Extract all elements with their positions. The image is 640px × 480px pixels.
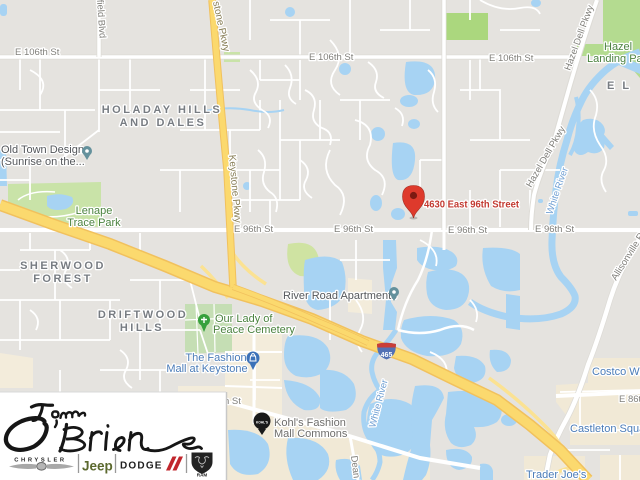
- svg-text:(Sunrise on the...: (Sunrise on the...: [1, 156, 85, 168]
- svg-text:E 86t: E 86t: [619, 394, 640, 405]
- svg-text:Peace Cemetery: Peace Cemetery: [213, 324, 295, 336]
- svg-text:Jeep: Jeep: [82, 459, 113, 474]
- svg-text:SHERWOOD: SHERWOOD: [20, 260, 106, 272]
- svg-text:E 106th St: E 106th St: [309, 52, 354, 63]
- svg-text:Mall at Keystone: Mall at Keystone: [166, 363, 247, 375]
- svg-text:Costco Wh: Costco Wh: [592, 366, 640, 378]
- svg-text:Lenape: Lenape: [76, 205, 113, 217]
- svg-text:DODGE: DODGE: [120, 461, 163, 472]
- svg-text:Hazel: Hazel: [604, 41, 632, 53]
- svg-text:HOLADAY HILLS: HOLADAY HILLS: [102, 104, 223, 116]
- svg-text:HILLS: HILLS: [120, 322, 164, 334]
- svg-text:E 96th St: E 96th St: [535, 224, 574, 235]
- svg-text:Trader Joe's: Trader Joe's: [526, 469, 587, 480]
- svg-text:E 96th St: E 96th St: [334, 224, 373, 235]
- svg-text:River Road Apartments: River Road Apartments: [283, 290, 397, 302]
- svg-text:E L: E L: [607, 80, 632, 92]
- svg-text:FOREST: FOREST: [33, 273, 93, 285]
- svg-text:E 96th St: E 96th St: [448, 225, 487, 236]
- svg-text:4630 East 96th Street: 4630 East 96th Street: [424, 200, 520, 211]
- svg-text:Landing Par: Landing Par: [587, 53, 640, 65]
- svg-text:E 96th St: E 96th St: [234, 224, 273, 235]
- svg-text:E 106th St: E 106th St: [15, 47, 60, 58]
- svg-text:Trace Park: Trace Park: [67, 217, 121, 229]
- svg-text:RAM: RAM: [197, 473, 208, 478]
- svg-text:465: 465: [381, 352, 393, 359]
- svg-text:KOHL'S: KOHL'S: [256, 421, 268, 425]
- svg-text:Castleton Squa: Castleton Squa: [570, 423, 640, 435]
- svg-text:AND DALES: AND DALES: [120, 117, 207, 129]
- svg-text:Old Town Design: Old Town Design: [1, 144, 84, 156]
- svg-text:DRIFTWOOD: DRIFTWOOD: [98, 309, 188, 321]
- svg-text:Mall Commons: Mall Commons: [274, 428, 348, 440]
- svg-text:E 106th St: E 106th St: [489, 53, 534, 64]
